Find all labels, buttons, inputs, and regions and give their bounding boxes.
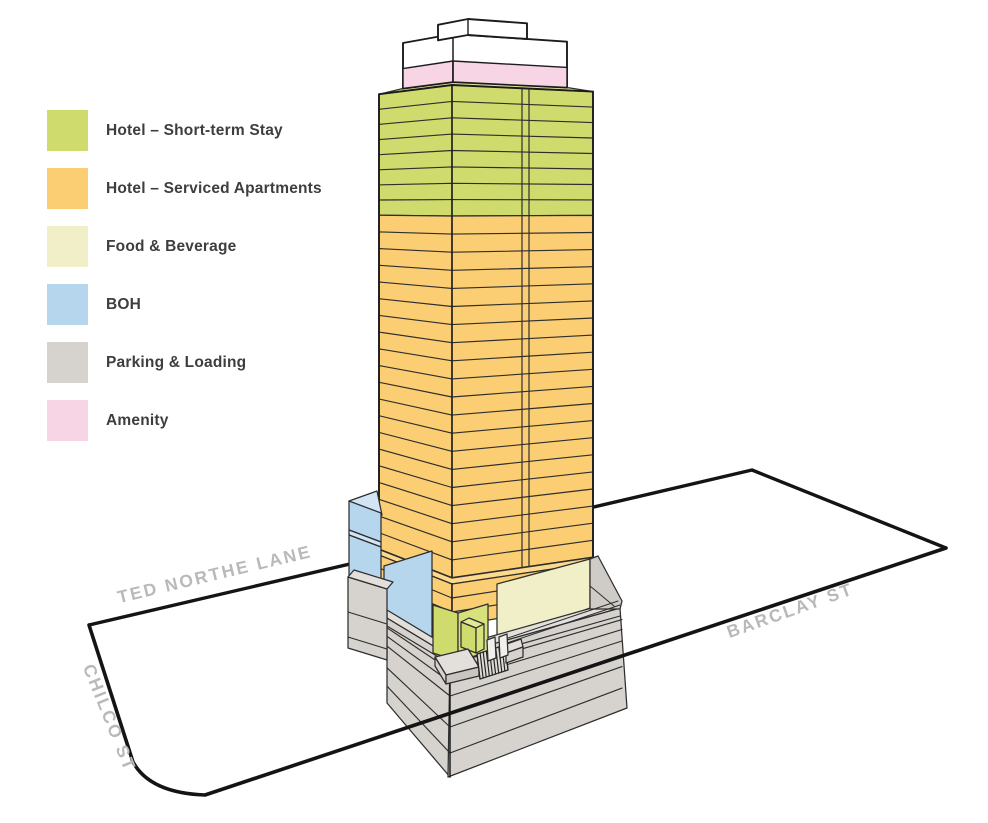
legend-item: Hotel – Short-term Stay [47, 110, 322, 151]
vestibule-post [487, 637, 496, 661]
legend-swatch-hotel-serviced [47, 168, 88, 209]
legend-label: Hotel – Short-term Stay [106, 122, 283, 140]
legend-label: Parking & Loading [106, 354, 246, 372]
building-tower [379, 82, 593, 578]
legend-label: BOH [106, 296, 141, 314]
legend-item: Hotel – Serviced Apartments [47, 168, 322, 209]
building-crown [403, 19, 567, 89]
vestibule-post [499, 634, 508, 658]
legend-swatch-hotel-short-term [47, 110, 88, 151]
legend-label: Hotel – Serviced Apartments [106, 180, 322, 198]
legend-swatch-parking-loading [47, 342, 88, 383]
legend-item: BOH [47, 284, 322, 325]
fnb-kiosk-left-face [461, 622, 476, 653]
tower-left-face-green [379, 85, 452, 216]
legend-label: Amenity [106, 412, 169, 430]
legend-item: Food & Beverage [47, 226, 322, 267]
legend-swatch-boh [47, 284, 88, 325]
street-label-barclay-st: BARCLAY ST [724, 579, 856, 642]
legend-item: Amenity [47, 400, 322, 441]
legend-swatch-food-beverage [47, 226, 88, 267]
fnb-kiosk-right-face [476, 624, 484, 653]
legend-item: Parking & Loading [47, 342, 322, 383]
street-label-chilco-st: CHILCO ST [79, 661, 140, 774]
massing-diagram-page: Hotel – Short-term Stay Hotel – Serviced… [0, 0, 988, 823]
legend: Hotel – Short-term Stay Hotel – Serviced… [47, 110, 322, 458]
legend-swatch-amenity [47, 400, 88, 441]
legend-label: Food & Beverage [106, 238, 236, 256]
